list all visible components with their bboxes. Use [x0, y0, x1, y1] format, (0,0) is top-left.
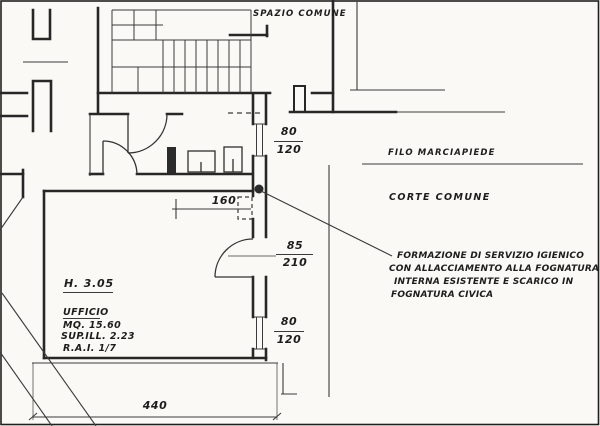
door3-arc: [215, 239, 253, 277]
annotation-line-1: FORMAZIONE DI SERVIZIO IGIENICO: [397, 252, 584, 261]
upper-window: [254, 124, 265, 156]
dim-lower-window-height: 120: [271, 334, 307, 345]
room-height-label: H. 3.05: [64, 278, 114, 289]
room-sup-ill: SUP.ILL. 2.23: [61, 332, 135, 342]
label-filo-marciapiede: FILO MARCIAPIEDE: [388, 149, 496, 158]
room-rai: R.A.I. 1/7: [63, 344, 116, 354]
door1-arc: [128, 114, 167, 153]
label-corte-comune: CORTE COMUNE: [389, 193, 491, 203]
floorplan-drawing: [0, 0, 600, 426]
label-spazio-comune: SPAZIO COMUNE: [253, 10, 347, 19]
floorplan-canvas: SPAZIO COMUNE FILO MARCIAPIEDE CORTE COM…: [0, 0, 600, 426]
dim-door-width: 85: [277, 240, 313, 251]
staircase-hatch: [112, 10, 251, 93]
bathroom-fixtures: [188, 147, 242, 172]
dim-door-height: 210: [277, 257, 313, 268]
window-symbols: [254, 124, 265, 349]
dim-recess-width: 160: [202, 195, 246, 206]
dim-upper-window-width: 80: [274, 126, 304, 137]
room-area: MQ. 15.60: [63, 321, 121, 331]
dim-upper-window-height: 120: [271, 144, 307, 155]
wall-lines: [0, 1, 396, 360]
dim-lower-window-width: 80: [273, 316, 305, 327]
room-name: UFFICIO: [63, 308, 109, 318]
annotation-line-4: FOGNATURA CIVICA: [391, 291, 493, 300]
door2-arc: [103, 141, 137, 175]
site-lines: [0, 1, 583, 426]
border-frame: [1, 1, 599, 425]
annotation-line-3: INTERNA ESISTENTE E SCARICO IN: [394, 278, 573, 287]
lower-window: [254, 317, 265, 349]
annotation-line-2: CON ALLACCIAMENTO ALLA FOGNATURA: [389, 265, 599, 274]
dim-room-width: 440: [133, 400, 177, 411]
